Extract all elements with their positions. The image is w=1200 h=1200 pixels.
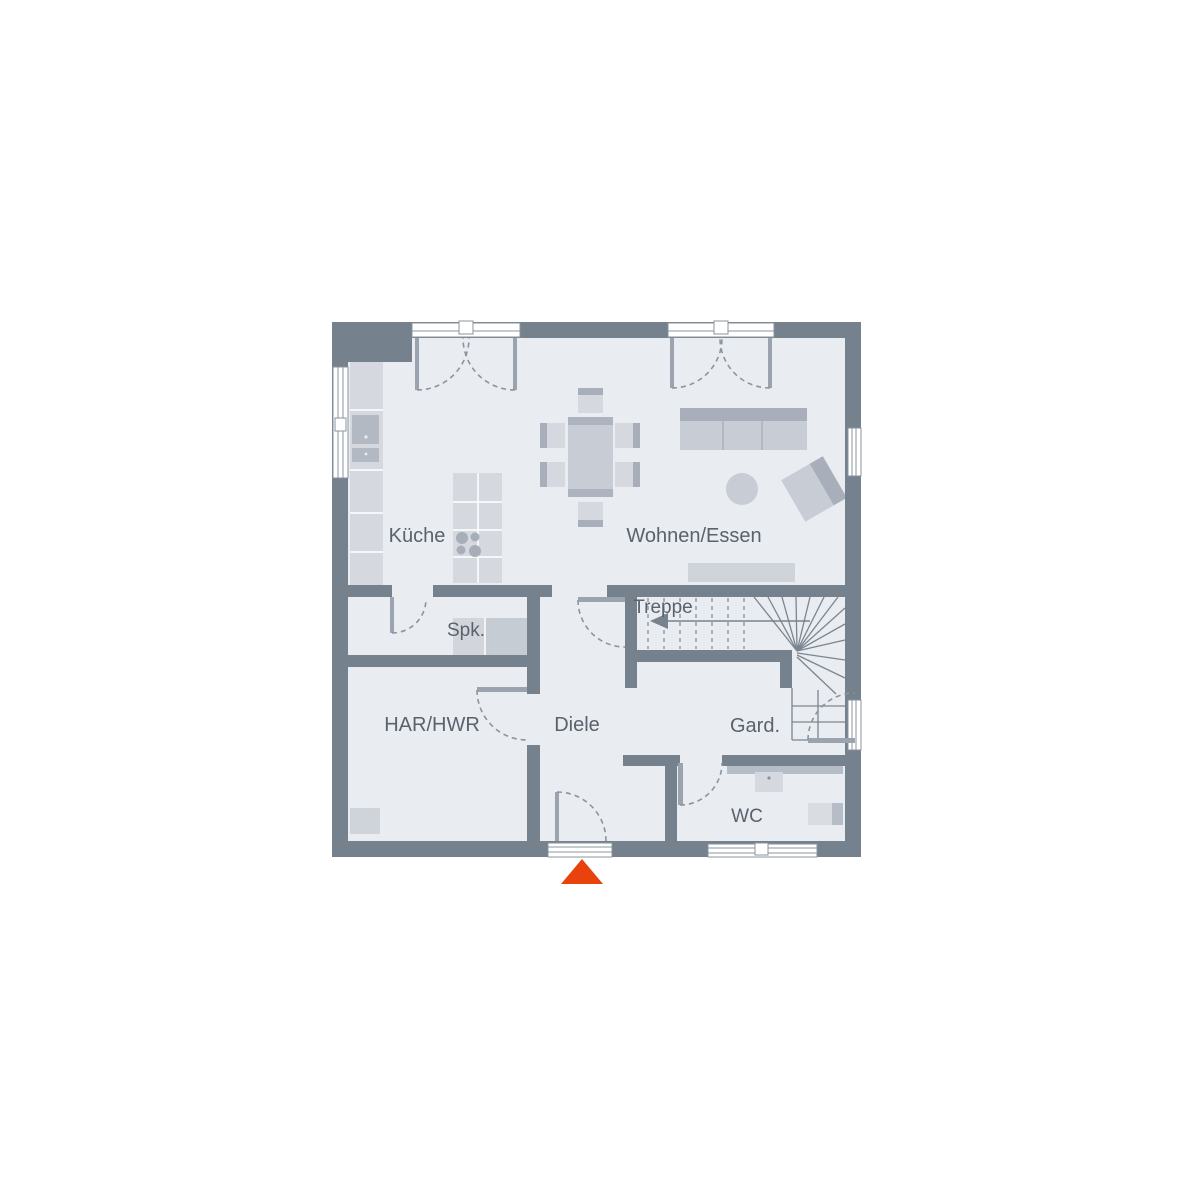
outer-wall-top xyxy=(332,322,861,338)
kitchen-island xyxy=(453,473,502,583)
dining-table xyxy=(568,417,613,497)
room-label-gard: Gard. xyxy=(730,715,780,737)
room-label-treppe: Treppe xyxy=(633,597,693,618)
window-right-living xyxy=(848,428,861,476)
floor-plan: Küche Wohnen/Essen Spk. Treppe HAR/HWR D… xyxy=(0,0,1200,1200)
sideboard xyxy=(688,563,795,582)
room-label-wohnen-essen: Wohnen/Essen xyxy=(626,525,761,547)
room-label-diele: Diele xyxy=(554,714,600,736)
sink-icon xyxy=(755,772,783,792)
room-label-kueche: Küche xyxy=(389,525,446,547)
room-label-spk: Spk. xyxy=(447,620,485,641)
oven-icon xyxy=(352,415,379,444)
room-label-wc: WC xyxy=(731,806,763,827)
utility-appliance xyxy=(350,808,380,834)
sofa xyxy=(680,408,807,450)
wc-counter xyxy=(727,765,843,774)
window-left xyxy=(333,367,348,478)
outer-wall-right xyxy=(845,322,861,857)
window-wc xyxy=(708,843,817,857)
room-label-har-hwr: HAR/HWR xyxy=(384,714,480,736)
kitchen-counter xyxy=(350,362,383,585)
coffee-table xyxy=(726,473,758,505)
corner-wall-block xyxy=(348,338,412,362)
floor-plan-page: Küche Wohnen/Essen Spk. Treppe HAR/HWR D… xyxy=(0,0,1200,1200)
entrance-arrow-icon xyxy=(561,859,603,884)
toilet-icon xyxy=(808,803,832,825)
